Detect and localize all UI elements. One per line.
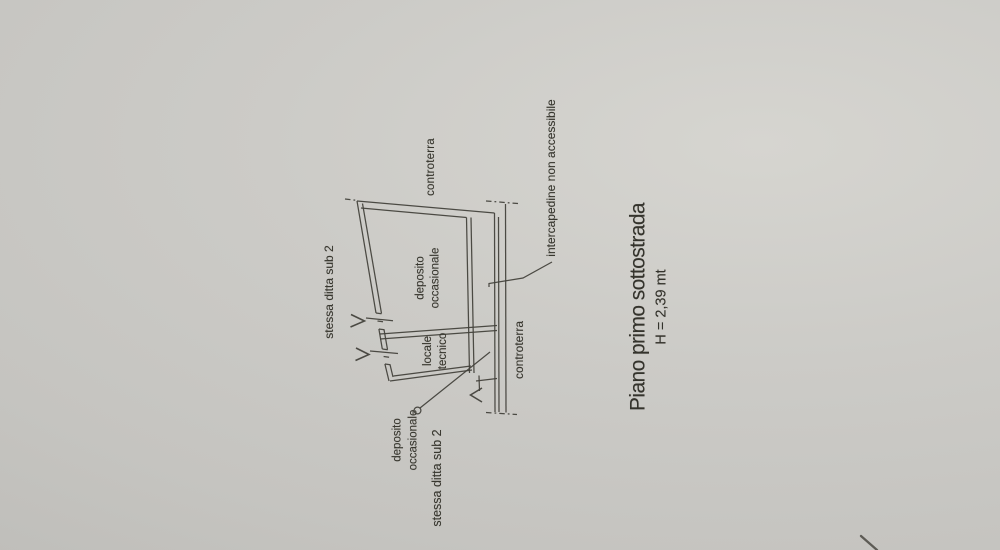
callout-label-deposito-line1: deposito [391, 410, 407, 471]
label-intercapedine-non-accessibile: intercapedine non accessibile [544, 99, 558, 256]
room-label-locale-line1: locale [421, 333, 436, 369]
callout-label-deposito-line2: occasionale [406, 410, 422, 471]
scratch-mark [861, 536, 877, 550]
floor-plan-drawing [0, 0, 1000, 550]
plan-title: Piano primo sottostrada [627, 203, 651, 411]
plan-height-note: H = 2,39 mt [651, 203, 674, 411]
label-controterra-top: controterra [425, 138, 437, 196]
label-stessa-ditta-bottom: stessa ditta sub 2 [430, 429, 444, 526]
label-stessa-ditta-top-left: stessa ditta sub 2 [322, 245, 336, 338]
room-label-locale-tecnico: locale tecnico [421, 333, 451, 369]
plan-title-block: Piano primo sottostrada H = 2,39 mt [627, 203, 674, 411]
room-label-locale-line2: tecnico [436, 333, 451, 369]
photographed-floor-plan-page: controterra stessa ditta sub 2 deposito … [0, 0, 1000, 550]
room-label-deposito-occasionale: deposito occasionale [414, 248, 445, 309]
room-label-deposito-line2: occasionale [429, 248, 444, 309]
room-label-deposito-line1: deposito [414, 248, 429, 309]
label-controterra-right: controterra [512, 321, 526, 379]
callout-label-deposito-occasionale: deposito occasionale [391, 410, 422, 471]
